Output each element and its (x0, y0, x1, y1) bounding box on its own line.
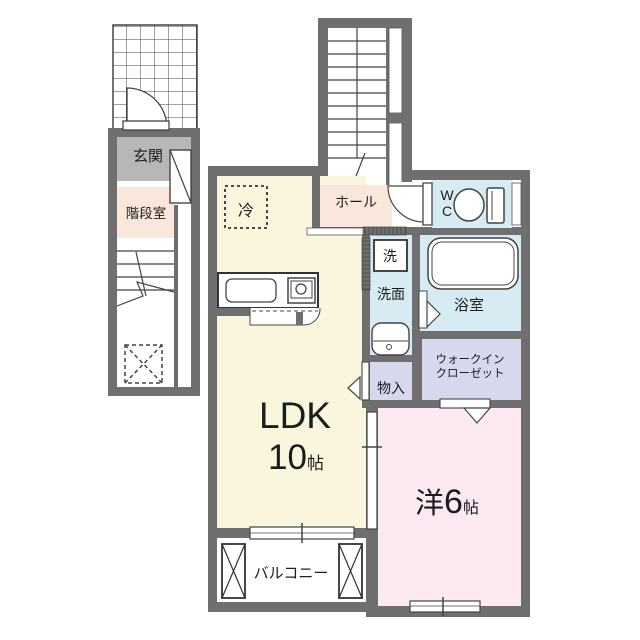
wc-door-leaf (423, 183, 432, 225)
ldk-label: LDK (259, 395, 331, 436)
wic-door-leaf (440, 399, 490, 408)
hall-ldk-opening (307, 228, 364, 235)
bathtub-outer (428, 238, 518, 289)
wall-hall-left (312, 176, 320, 235)
ldk-washroom-sliding-door (362, 238, 370, 290)
wic-label-line2: クローゼット (436, 367, 505, 380)
bathtub-icon (428, 238, 518, 289)
bath-door-leaf (419, 291, 427, 328)
wall-left (208, 166, 217, 612)
storage-label: 物入 (377, 380, 405, 396)
ldk-western-sliding-door (367, 412, 377, 529)
wc-label-line1: W (440, 187, 454, 203)
washbasin-bowl (372, 323, 409, 355)
western-kanji: 洋 (415, 487, 444, 520)
wall-stair-divider (174, 205, 178, 387)
wall-top-left (208, 166, 328, 176)
ldk-size-unit: 帖 (307, 454, 324, 473)
washbasin-icon (372, 323, 409, 355)
kitchen-counter-leg (296, 312, 303, 325)
wic-label-line1: ウォークイン (436, 353, 505, 366)
washroom-label: 洗面 (377, 286, 405, 302)
hall-label: ホール (335, 194, 377, 210)
wall-top-right (412, 170, 530, 180)
balcony-label: バルコニー (254, 565, 329, 582)
stair-room-label: 階段室 (126, 205, 167, 221)
genkan-label: 玄関 (133, 148, 163, 165)
floor-plan: 玄関 階段室 ホール W C 浴室 洗 洗面 物入 ウォークイン クローゼット … (0, 0, 640, 640)
wall-right (521, 170, 530, 617)
wall-niche-separator (389, 113, 402, 123)
ldk-size-number: 10 (268, 438, 307, 477)
stove-icon (288, 278, 315, 303)
bedroom-window (410, 601, 480, 612)
entrance-door-leaf (123, 121, 169, 130)
toilet-bowl (454, 189, 484, 221)
storage-door-leaf (362, 362, 369, 400)
toilet-tank (487, 188, 504, 223)
wall-bottom-balcony (208, 602, 378, 612)
wall-wic-left (412, 339, 422, 400)
laundry-label: 洗 (383, 248, 397, 264)
pipe-space (512, 183, 521, 225)
western-size-number: 6 (444, 483, 463, 521)
toilet-icon (454, 188, 504, 223)
wall-storage-top (362, 355, 420, 362)
hall-washroom-sliding-door (363, 227, 406, 235)
wall-stairwell-rail (386, 28, 389, 188)
refrigerator-label: 冷 (238, 202, 254, 220)
stairwell-niche (389, 28, 402, 113)
wall-bath-wic (412, 331, 521, 339)
floor-plan-svg: 玄関 階段室 ホール W C 浴室 洗 洗面 物入 ウォークイン クローゼット … (0, 0, 640, 640)
wc-label-line2: C (442, 203, 452, 219)
bathroom-label: 浴室 (454, 297, 484, 314)
kitchen-sink-icon (226, 279, 276, 302)
western-size-unit: 帖 (463, 499, 479, 517)
stairwell-niche (389, 123, 402, 188)
